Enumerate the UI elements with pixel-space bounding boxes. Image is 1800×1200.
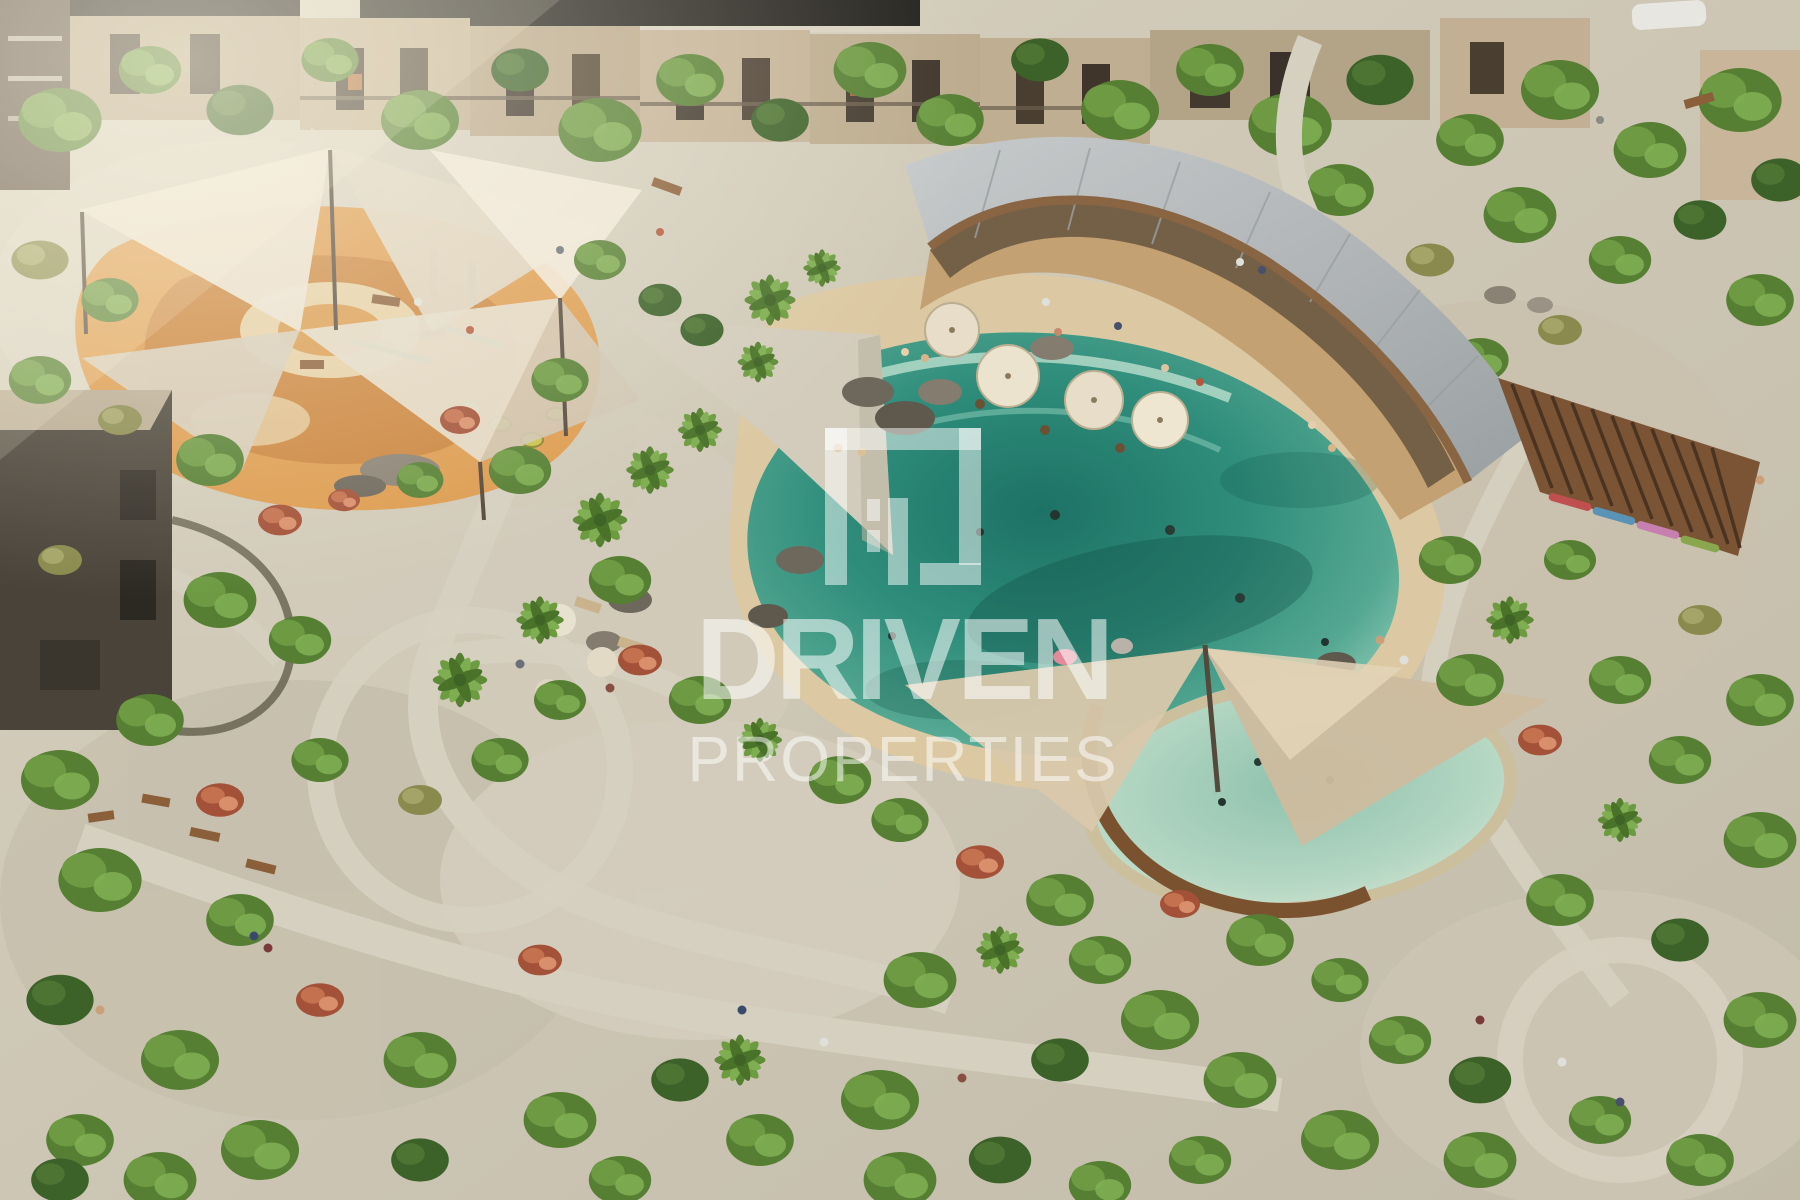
aerial-render-image: DRIVEN PROPERTIES (0, 0, 1800, 1200)
scene-illustration (0, 0, 1800, 1200)
